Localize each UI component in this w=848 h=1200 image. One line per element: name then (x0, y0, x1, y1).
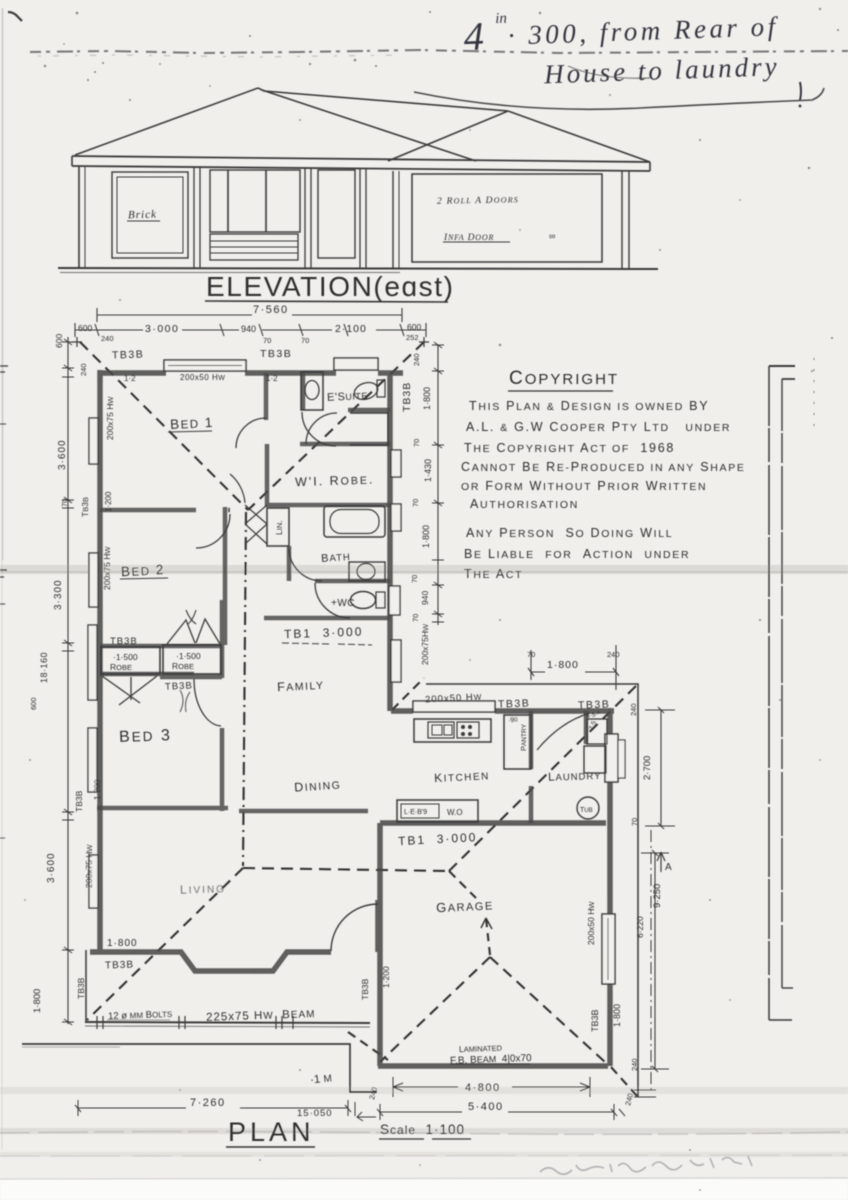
svg-text:70: 70 (60, 499, 69, 507)
svg-text:OR FORM WITHOUT PRIOR WRITTEN: OR FORM WITHOUT PRIOR WRITTEN (461, 479, 707, 493)
svg-text:BE LIABLE FOR ACTION UNDER: BE LIABLE FOR ACTION UNDER (464, 547, 690, 561)
svg-text:TB3B: TB3B (112, 349, 145, 362)
svg-text:∞: ∞ (549, 231, 555, 241)
svg-text:3·600: 3·600 (46, 852, 57, 883)
svg-text:600: 600 (407, 322, 421, 332)
svg-text:7·560: 7·560 (253, 304, 289, 316)
svg-text:ELEVATION(eɑst): ELEVATION(eɑst) (206, 271, 455, 302)
svg-text:TB3B: TB3B (110, 636, 138, 647)
svg-text:TB3B: TB3B (360, 978, 370, 1000)
svg-text:PANTRY: PANTRY (519, 723, 528, 751)
svg-text:·1·500: ·1·500 (176, 651, 201, 661)
svg-text:TB3B: TB3B (105, 960, 134, 972)
svg-text:ROBE: ROBE (110, 662, 132, 672)
svg-text:TB3B: TB3B (260, 348, 292, 360)
svg-text:W.O: W.O (447, 808, 463, 817)
svg-text:L·E·B'9: L·E·B'9 (404, 809, 427, 816)
svg-text:1·800: 1·800 (612, 1004, 622, 1027)
svg-text:A: A (665, 862, 672, 873)
svg-text:1·800: 1·800 (547, 659, 579, 671)
svg-text:9·250: 9·250 (652, 884, 663, 908)
svg-text:5·400: 5·400 (468, 1101, 504, 1113)
svg-text:·1 M: ·1 M (310, 1072, 333, 1086)
svg-text:TB3B: TB3B (74, 790, 84, 812)
svg-text:TB1 3·000: TB1 3·000 (284, 624, 364, 641)
svg-text:TB3B: TB3B (80, 497, 90, 517)
svg-text:240: 240 (629, 703, 638, 716)
svg-text:70: 70 (263, 336, 271, 345)
svg-text:70: 70 (630, 818, 639, 826)
svg-text:1·800: 1·800 (32, 989, 43, 1013)
svg-text:A.L. & G.W COOPER PTY LTD UN: A.L. & G.W COOPER PTY LTD UNDER (466, 420, 731, 434)
svg-text:70: 70 (301, 336, 309, 345)
svg-text:1·200: 1·200 (93, 779, 102, 800)
svg-text:THIS PLAN & DESIGN IS OWNED BY: THIS PLAN & DESIGN IS OWNED BY (469, 399, 709, 413)
svg-text:TB3B: TB3B (578, 698, 611, 711)
svg-text:ANY PERSON SO DOING WILL: ANY PERSON SO DOING WILL (466, 526, 673, 540)
svg-text:BED 3: BED 3 (119, 727, 172, 746)
svg-text:240: 240 (101, 334, 114, 343)
svg-text:Scale 1·100: Scale 1·100 (380, 1122, 465, 1137)
svg-text:18·160: 18·160 (39, 652, 49, 683)
svg-text:70: 70 (410, 575, 419, 583)
svg-text:6·220: 6·220 (635, 916, 645, 938)
svg-text:3·300: 3·300 (53, 579, 64, 610)
svg-text:CANNOT BE RE-PRODUCED IN ANY S: CANNOT BE RE-PRODUCED IN ANY SHAPE (461, 460, 746, 474)
svg-text:1·2: 1·2 (266, 374, 278, 383)
svg-text:THE COPYRIGHT ACT OF 1968: THE COPYRIGHT ACT OF 1968 (464, 441, 675, 455)
svg-text:240: 240 (630, 1058, 639, 1071)
svg-text:3·600: 3·600 (57, 439, 68, 470)
svg-text:1·200: 1·200 (104, 491, 113, 512)
svg-text:1·430: 1·430 (423, 459, 433, 482)
svg-text:200x50 HW: 200x50 HW (180, 373, 225, 382)
svg-text:THE ACT: THE ACT (464, 567, 523, 581)
svg-text:200x50 HW: 200x50 HW (586, 901, 596, 945)
svg-text:BATH: BATH (321, 551, 351, 565)
svg-text:240: 240 (412, 353, 421, 366)
svg-text:1·800: 1·800 (422, 387, 432, 410)
svg-text:W'I. ROBE.: W'I. ROBE. (295, 472, 375, 489)
svg-text:1·2: 1·2 (124, 374, 136, 383)
svg-text:240: 240 (79, 363, 88, 376)
svg-text:200x75 HW: 200x75 HW (105, 396, 115, 440)
svg-text:Brick: Brick (128, 208, 157, 221)
svg-text:200x75HW: 200x75HW (420, 623, 430, 665)
svg-text:940: 940 (420, 591, 430, 605)
svg-text:TB3B: TB3B (401, 382, 413, 412)
svg-text:LAMINATED: LAMINATED (459, 1043, 503, 1055)
svg-text:LAUNDRY: LAUNDRY (548, 770, 602, 784)
svg-text:200x75 HW: 200x75 HW (102, 546, 112, 590)
svg-text:600: 600 (54, 334, 64, 348)
svg-text:1·200: 1·200 (381, 966, 391, 988)
svg-text:AUTHORISATION: AUTHORISATION (470, 497, 579, 511)
svg-text:·1·500: ·1·500 (113, 652, 138, 662)
svg-text:600: 600 (29, 697, 38, 710)
svg-text:ROBE: ROBE (172, 661, 194, 671)
svg-text:·90: ·90 (508, 716, 519, 724)
svg-text:70: 70 (411, 614, 420, 622)
svg-text:70: 70 (412, 439, 421, 447)
svg-text:4·800: 4·800 (465, 1082, 501, 1094)
svg-text:2·100: 2·100 (335, 323, 367, 335)
svg-text:70: 70 (411, 499, 420, 507)
svg-text:3·000: 3·000 (145, 323, 179, 335)
svg-text:70: 70 (527, 650, 535, 659)
svg-text:+WC: +WC (331, 598, 355, 609)
svg-text:COPYRIGHT: COPYRIGHT (509, 368, 619, 389)
svg-text:7·260: 7·260 (190, 1097, 226, 1109)
svg-text:1·800: 1·800 (421, 525, 431, 548)
svg-text:TB3B: TB3B (165, 680, 193, 692)
svg-text:2·700: 2·700 (642, 756, 653, 780)
svg-text:940: 940 (241, 324, 256, 334)
svg-text:FAMILY: FAMILY (277, 678, 325, 694)
svg-text:200x75 HW: 200x75 HW (84, 844, 94, 888)
svg-text:PLAN: PLAN (228, 1117, 315, 1147)
svg-text:600: 600 (78, 323, 92, 333)
svg-text:TB3B: TB3B (590, 1009, 600, 1032)
svg-text:240: 240 (607, 650, 620, 659)
svg-text:TB3B: TB3B (498, 697, 531, 710)
svg-text:TUB: TUB (580, 807, 593, 814)
svg-text:4: 4 (463, 13, 485, 59)
svg-text:252: 252 (406, 333, 419, 342)
svg-text:1·800: 1·800 (107, 938, 138, 949)
svg-text:INFA DOOR: INFA DOOR (443, 233, 494, 243)
svg-text:LIN.: LIN. (274, 520, 284, 535)
svg-text:TB3B: TB3B (76, 977, 86, 999)
svg-text:in: in (495, 11, 507, 27)
